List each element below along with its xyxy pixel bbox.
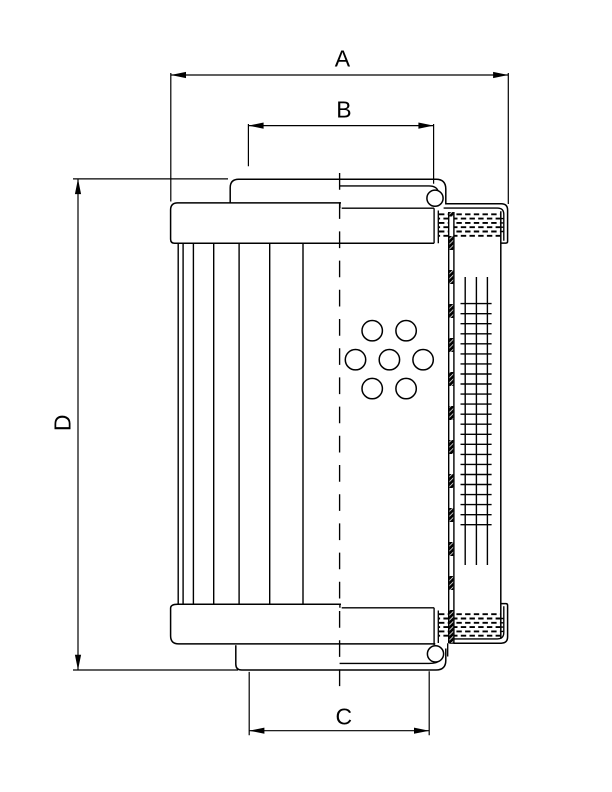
svg-text:A: A [335,46,351,72]
svg-text:B: B [336,97,351,123]
svg-text:C: C [335,704,352,730]
svg-text:D: D [50,414,76,431]
